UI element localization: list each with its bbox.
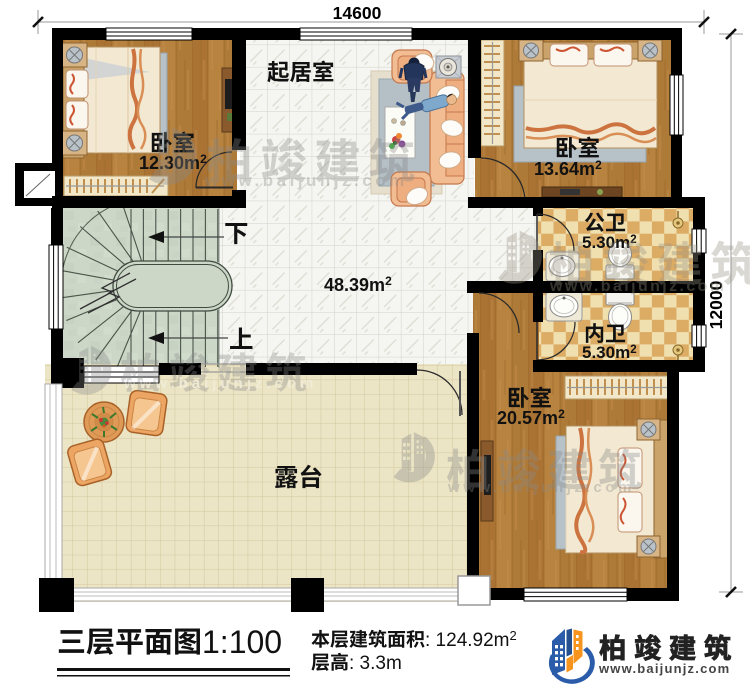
svg-text:www.baijunjz.com: www.baijunjz.com (123, 375, 317, 392)
svg-text:48.39m2: 48.39m2 (324, 274, 392, 295)
svg-text:www.baijunjz.com: www.baijunjz.com (204, 171, 408, 190)
svg-text:20.57m2: 20.57m2 (497, 407, 565, 428)
svg-text:: 3.3m: : 3.3m (349, 653, 402, 674)
svg-text:5.30m2: 5.30m2 (582, 343, 637, 362)
svg-text:1:100: 1:100 (202, 624, 282, 660)
svg-text:: 124.92m2: : 124.92m2 (425, 628, 517, 651)
svg-text:13.64m2: 13.64m2 (534, 158, 602, 179)
svg-text:www.baijunjz.com: www.baijunjz.com (447, 479, 635, 496)
svg-text:www.baijunjz.com: www.baijunjz.com (549, 278, 727, 295)
svg-text:14600: 14600 (333, 3, 382, 23)
svg-text:www.baijunjz.com: www.baijunjz.com (598, 661, 730, 676)
